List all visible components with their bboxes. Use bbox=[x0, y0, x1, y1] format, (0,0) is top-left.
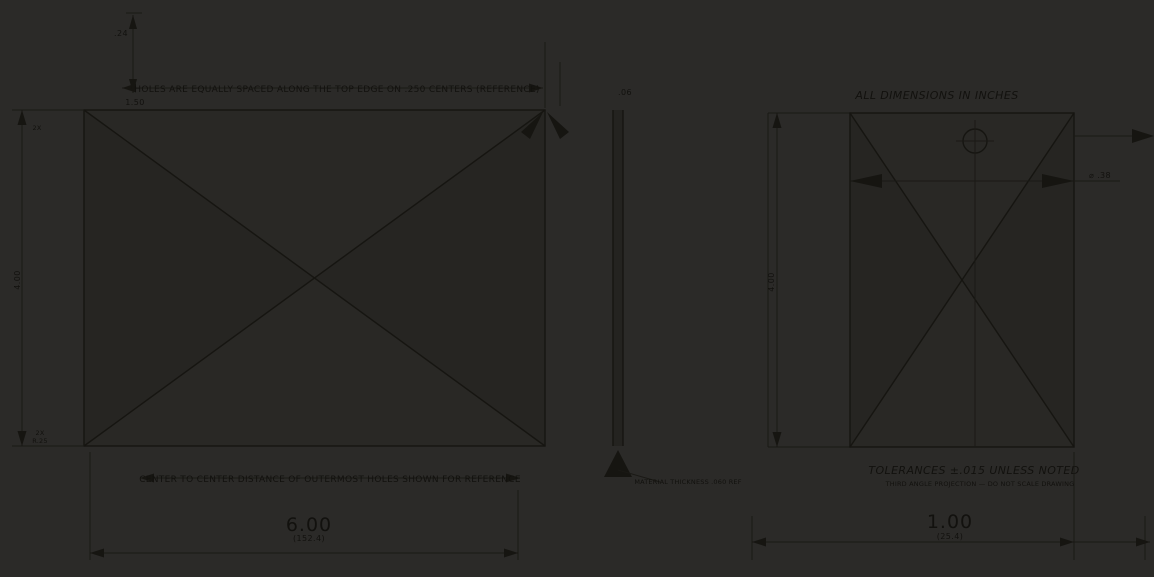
top-left-dim-arrow-up bbox=[129, 15, 137, 29]
left-height-dim-text: 4.00 bbox=[13, 270, 22, 289]
right-edge-arrow bbox=[1132, 129, 1154, 143]
corner-note-bottom-text-2: R.25 bbox=[32, 437, 47, 445]
end-view bbox=[850, 113, 1074, 447]
left-dim-arrow-down bbox=[18, 431, 27, 446]
corner-leader-arrow-2 bbox=[547, 112, 569, 139]
side-width-arrow-edge bbox=[1136, 538, 1150, 547]
top-gap-dim-text: .24 bbox=[114, 29, 128, 38]
right-height-arrow-down bbox=[773, 432, 782, 447]
right-top-italic-note: ALL DIMENSIONS IN INCHES bbox=[854, 89, 1018, 102]
bottom-width-dimension: 6.00 (152.4) bbox=[90, 452, 518, 560]
width-dim-arrow-left bbox=[90, 549, 104, 558]
width-dim-secondary-text: (152.4) bbox=[293, 534, 325, 543]
edge-view-face bbox=[613, 110, 623, 446]
right-height-dim-text: 4.00 bbox=[767, 272, 776, 291]
right-bottom-italic-note: TOLERANCES ±.015 UNLESS NOTED bbox=[868, 464, 1079, 477]
left-dim-arrow-up bbox=[18, 110, 27, 125]
left-height-dimension: 4.00 2X 2X R.25 bbox=[12, 110, 84, 446]
right-bottom-small-note: THIRD ANGLE PROJECTION — DO NOT SCALE DR… bbox=[885, 480, 1075, 488]
side-width-arrow-right bbox=[1060, 538, 1074, 547]
width-dim-primary-text: 6.00 bbox=[286, 514, 332, 536]
drawing-canvas: HOLES ARE EQUALLY SPACED ALONG THE TOP E… bbox=[0, 0, 1154, 577]
corner-note-bottom-text-1: 2X bbox=[36, 429, 45, 437]
side-width-dim-secondary-text: (25.4) bbox=[937, 532, 963, 541]
side-width-dim-primary-text: 1.00 bbox=[927, 511, 973, 533]
thickness-dim-text: .06 bbox=[618, 88, 632, 97]
hole-dim-text: ⌀ .38 bbox=[1089, 171, 1111, 180]
edge-view-note: MATERIAL THICKNESS .060 REF bbox=[634, 478, 741, 486]
top-offset-dim-text: 1.50 bbox=[125, 98, 144, 107]
width-dim-arrow-right bbox=[504, 549, 518, 558]
bottom-note-dimension: CENTER TO CENTER DISTANCE OF OUTERMOST H… bbox=[139, 474, 521, 486]
front-view bbox=[84, 110, 545, 446]
technical-drawing: HOLES ARE EQUALLY SPACED ALONG THE TOP E… bbox=[0, 0, 1154, 577]
right-height-arrow-up bbox=[773, 113, 782, 128]
top-left-vertical-dimension: .24 bbox=[114, 13, 142, 93]
bottom-spacing-note: CENTER TO CENTER DISTANCE OF OUTERMOST H… bbox=[139, 475, 521, 485]
top-dimension: HOLES ARE EQUALLY SPACED ALONG THE TOP E… bbox=[122, 42, 560, 108]
side-width-arrow-left bbox=[752, 538, 766, 547]
corner-note-top-text: 2X bbox=[33, 124, 42, 132]
right-height-dimension: 4.00 bbox=[767, 113, 850, 447]
edge-view: .06 MATERIAL THICKNESS .060 REF bbox=[604, 88, 742, 486]
top-spacing-note: HOLES ARE EQUALLY SPACED ALONG THE TOP E… bbox=[134, 85, 540, 95]
